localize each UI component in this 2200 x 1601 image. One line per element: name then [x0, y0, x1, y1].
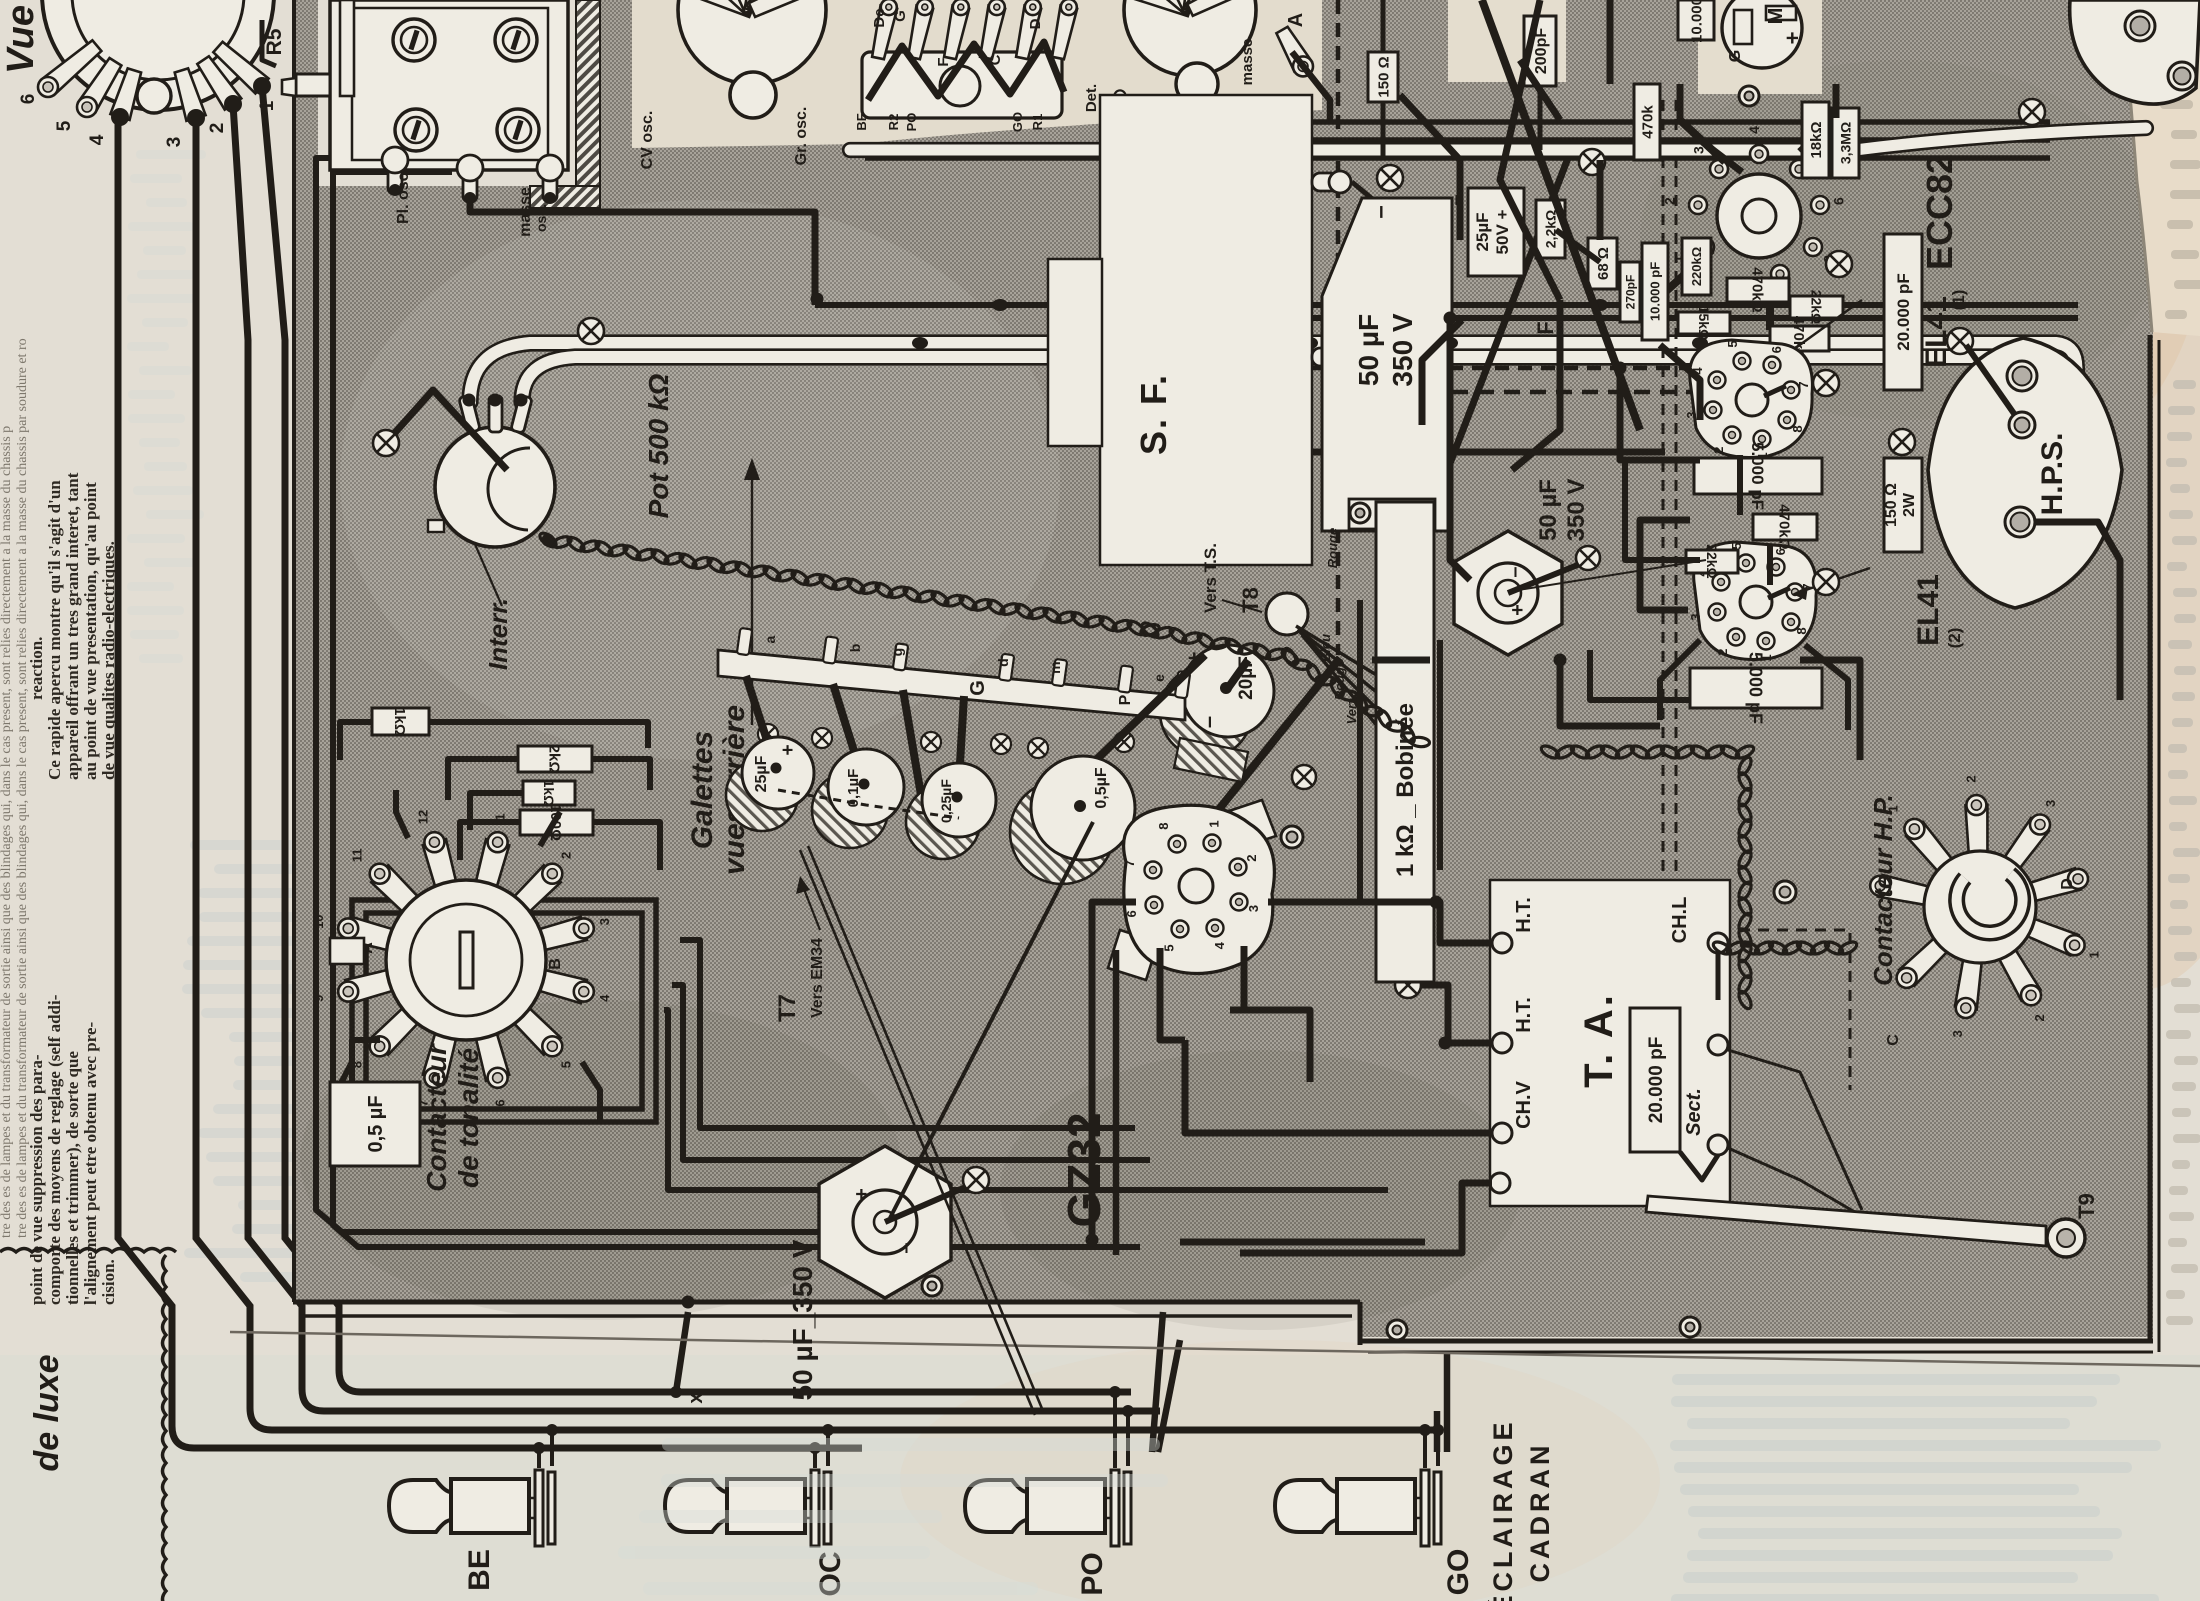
svg-text:EL41: EL41	[1912, 574, 1945, 646]
svg-text:appareil offrant un tres grand: appareil offrant un tres grand interet, …	[63, 472, 82, 780]
svg-text:10: 10	[311, 914, 326, 928]
svg-text:3: 3	[1688, 613, 1703, 620]
svg-text:Pot 500 kΩ: Pot 500 kΩ	[643, 373, 674, 518]
svg-text:8: 8	[1794, 627, 1809, 634]
svg-text:20.000 pF: 20.000 pF	[1894, 273, 1913, 351]
svg-text:4: 4	[1212, 941, 1227, 949]
svg-text:2: 2	[2032, 1014, 2047, 1021]
svg-text:tionnelles et trimmer),: tionnelles et trimmer), de sorte que	[63, 1051, 82, 1305]
svg-text:4: 4	[1746, 126, 1762, 134]
svg-text:PO: PO	[1076, 1552, 1109, 1595]
svg-text:3,3MΩ: 3,3MΩ	[1838, 122, 1854, 164]
svg-text:470kΩ: 470kΩ	[1776, 504, 1793, 549]
svg-text:2W: 2W	[1901, 492, 1918, 517]
svg-text:1: 1	[1207, 820, 1222, 827]
svg-text:9: 9	[311, 995, 326, 1002]
svg-text:cision.: cision.	[99, 1259, 118, 1305]
svg-text:GZ32: GZ32	[1058, 1112, 1110, 1227]
svg-text:+: +	[1780, 32, 1805, 45]
svg-text:6: 6	[492, 1099, 507, 1106]
svg-text:2,2kΩ: 2,2kΩ	[1543, 210, 1559, 248]
svg-text:PO: PO	[904, 113, 919, 132]
svg-text:2: 2	[1711, 447, 1726, 454]
svg-text:10.000: 10.000	[1688, 0, 1705, 43]
svg-text:15kΩ: 15kΩ	[1696, 306, 1712, 341]
svg-text:Vue c: Vue c	[0, 0, 42, 74]
svg-text:10.000 pF: 10.000 pF	[1648, 262, 1663, 321]
svg-text:4: 4	[597, 994, 612, 1002]
svg-text:2: 2	[1661, 197, 1677, 205]
svg-text:8: 8	[1790, 425, 1805, 432]
svg-text:G: G	[1727, 50, 1744, 62]
svg-text:350 V: 350 V	[1563, 479, 1590, 542]
svg-text:CADRAN: CADRAN	[1525, 1442, 1555, 1583]
svg-text:C: C	[987, 54, 1004, 65]
svg-text:18kΩ: 18kΩ	[1808, 121, 1825, 158]
svg-text:2: 2	[1964, 775, 1979, 782]
svg-text:R2: R2	[886, 114, 901, 131]
svg-text:5: 5	[1161, 944, 1176, 951]
svg-text:CH.L: CH.L	[1669, 897, 1691, 944]
svg-text:1: 1	[257, 100, 278, 111]
svg-text:470kΩ: 470kΩ	[1749, 267, 1766, 312]
svg-text:(1): (1)	[1949, 290, 1968, 311]
svg-text:l'alignement peut etre obte: l'alignement peut etre obtenu avec pre-	[81, 1022, 100, 1305]
svg-text:reaction.: reaction.	[27, 637, 46, 700]
svg-text:R5: R5	[263, 28, 286, 55]
svg-text:2: 2	[1244, 854, 1259, 861]
svg-text:GO: GO	[1010, 112, 1025, 132]
svg-text:0,5 µF: 0,5 µF	[365, 1095, 387, 1152]
svg-text:R1: R1	[1030, 114, 1045, 131]
svg-text:T7: T7	[774, 994, 801, 1022]
svg-text:BE: BE	[463, 1549, 496, 1591]
svg-text:De: De	[871, 8, 888, 27]
svg-text:470k: 470k	[1639, 105, 1656, 139]
svg-text:d: d	[995, 658, 1011, 667]
svg-text:(2): (2)	[1945, 628, 1964, 649]
svg-text:6: 6	[18, 94, 39, 105]
svg-text:+: +	[1507, 604, 1529, 616]
svg-text:–: –	[895, 1242, 917, 1253]
svg-text:5.000 pF: 5.000 pF	[1746, 652, 1766, 724]
svg-text:150 Ω: 150 Ω	[1375, 56, 1392, 97]
svg-text:Interr.: Interr.	[483, 598, 513, 670]
svg-text:3: 3	[164, 137, 185, 148]
svg-text:5: 5	[559, 1061, 574, 1068]
svg-text:6: 6	[1831, 197, 1847, 205]
svg-text:6: 6	[1124, 910, 1139, 917]
svg-text:22kΩ: 22kΩ	[1704, 544, 1720, 579]
svg-text:3: 3	[597, 918, 612, 925]
svg-text:Rouge: Rouge	[1325, 528, 1340, 568]
svg-text:comporte des moyens de reglage: comporte des moyens de reglage (self add…	[45, 994, 64, 1305]
svg-text:m: m	[1047, 661, 1063, 673]
svg-text:7: 7	[1796, 381, 1811, 388]
svg-text:8: 8	[1156, 823, 1171, 830]
svg-text:T. A.: T. A.	[1577, 992, 1621, 1088]
svg-text:22kΩ: 22kΩ	[1808, 290, 1824, 325]
svg-text:5: 5	[54, 120, 75, 131]
svg-text:osc.: osc.	[533, 204, 549, 232]
svg-text:A: A	[1285, 13, 1307, 27]
svg-text:Galettes: Galettes	[686, 731, 719, 849]
svg-text:T8: T8	[1238, 587, 1263, 613]
svg-text:220kΩ: 220kΩ	[1689, 247, 1704, 286]
svg-text:masse: masse	[1239, 39, 1256, 86]
svg-text:6: 6	[1769, 346, 1784, 353]
svg-text:–: –	[1196, 716, 1221, 728]
svg-text:H.T.: H.T.	[1513, 897, 1535, 933]
svg-text:25µF: 25µF	[753, 755, 770, 792]
svg-text:F: F	[935, 57, 952, 66]
svg-text:G: G	[892, 10, 909, 22]
svg-text:de tonalité: de tonalité	[453, 1048, 484, 1188]
svg-text:F: F	[1533, 321, 1558, 334]
svg-text:M: M	[1765, 8, 1787, 25]
svg-text:12: 12	[416, 810, 431, 824]
svg-text:Bleu: Bleu	[1318, 634, 1333, 662]
svg-text:Pl. osc.: Pl. osc.	[395, 168, 412, 224]
svg-text:–: –	[1504, 566, 1526, 577]
svg-text:P: P	[1117, 694, 1134, 705]
svg-text:0,5µF: 0,5µF	[1093, 767, 1110, 808]
svg-text:Gr. osc.: Gr. osc.	[793, 107, 810, 166]
svg-text:g: g	[889, 648, 905, 657]
svg-text:270pF: 270pF	[1623, 275, 1637, 310]
svg-text:7: 7	[1122, 860, 1137, 867]
svg-text:C: C	[1885, 1034, 1902, 1046]
svg-text:Ce rapide apercu montre qu'il: Ce rapide apercu montre qu'il s'agit d'u…	[45, 480, 64, 780]
svg-text:3: 3	[1246, 905, 1261, 912]
svg-text:20.000 pF: 20.000 pF	[1646, 1037, 1667, 1124]
svg-text:350 V: 350 V	[1387, 313, 1418, 386]
svg-text:3: 3	[2043, 800, 2058, 807]
svg-text:2: 2	[1715, 649, 1730, 656]
svg-text:5.000 pF: 5.000 pF	[1748, 442, 1767, 510]
svg-text:D: D	[1027, 18, 1044, 29]
svg-text:Vers EM34: Vers EM34	[809, 938, 826, 1018]
svg-text:Contacteur H.P.: Contacteur H.P.	[1868, 794, 1898, 986]
svg-text:b: b	[847, 644, 863, 653]
svg-text:1: 1	[2087, 951, 2102, 958]
svg-text:de luxe: de luxe	[28, 1354, 66, 1471]
svg-text:2: 2	[559, 852, 574, 859]
svg-text:au point de vue presentation,: au point de vue presentation, qu'au poin…	[81, 482, 100, 780]
svg-text:1kΩ: 1kΩ	[391, 707, 408, 736]
svg-text:25µF: 25µF	[1473, 212, 1492, 251]
svg-text:5: 5	[1725, 340, 1740, 347]
svg-text:x: x	[685, 1392, 707, 1403]
svg-text:ÉCLAIRAGE: ÉCLAIRAGE	[1487, 1418, 1518, 1601]
svg-text:CV osc.: CV osc.	[639, 111, 656, 170]
svg-text:Det.: Det.	[1083, 84, 1100, 112]
svg-text:GO: GO	[1442, 1549, 1475, 1596]
svg-text:2: 2	[207, 123, 228, 134]
svg-text:50 µF_350 V: 50 µF_350 V	[787, 1239, 818, 1400]
svg-text:a: a	[762, 636, 778, 644]
svg-text:1: 1	[492, 813, 507, 820]
svg-text:ECC82: ECC82	[1919, 154, 1960, 270]
svg-text:point de vue suppression des p: point de vue suppression des para-	[27, 1054, 46, 1305]
svg-text:+: +	[778, 744, 799, 755]
svg-text:1kΩ: 1kΩ	[541, 780, 557, 807]
svg-text:CH.V: CH.V	[1513, 1080, 1535, 1128]
svg-text:3: 3	[1950, 1030, 1965, 1037]
svg-text:H.P.S.: H.P.S.	[2036, 433, 2069, 516]
svg-text:11: 11	[349, 848, 364, 862]
svg-text:BF: BF	[854, 113, 869, 130]
svg-text:G: G	[967, 680, 989, 696]
svg-text:H.T.: H.T.	[1513, 997, 1535, 1033]
svg-text:Sect.: Sect.	[1683, 1088, 1705, 1136]
svg-text:150 Ω: 150 Ω	[1883, 483, 1900, 527]
svg-text:Vers T.S.: Vers T.S.	[1201, 543, 1220, 613]
svg-text:S. F.: S. F.	[1133, 373, 1174, 455]
svg-text:D: D	[2059, 878, 2076, 890]
svg-text:tre des es de lampes et du tra: tre des es de lampes et du transformateu…	[0, 426, 14, 1238]
svg-text:50 µF: 50 µF	[1535, 479, 1562, 541]
svg-text:+: +	[851, 1188, 873, 1200]
svg-text:2kΩ: 2kΩ	[546, 745, 563, 774]
svg-text:B: B	[547, 958, 564, 970]
svg-text:4: 4	[87, 134, 108, 145]
svg-text:T9: T9	[2074, 1193, 2099, 1219]
svg-text:Contacteur: Contacteur	[421, 1042, 452, 1192]
svg-text:–: –	[1367, 205, 1394, 218]
svg-text:e: e	[1151, 674, 1167, 682]
svg-text:50 µF: 50 µF	[1353, 314, 1384, 386]
svg-text:50V +: 50V +	[1493, 209, 1512, 254]
